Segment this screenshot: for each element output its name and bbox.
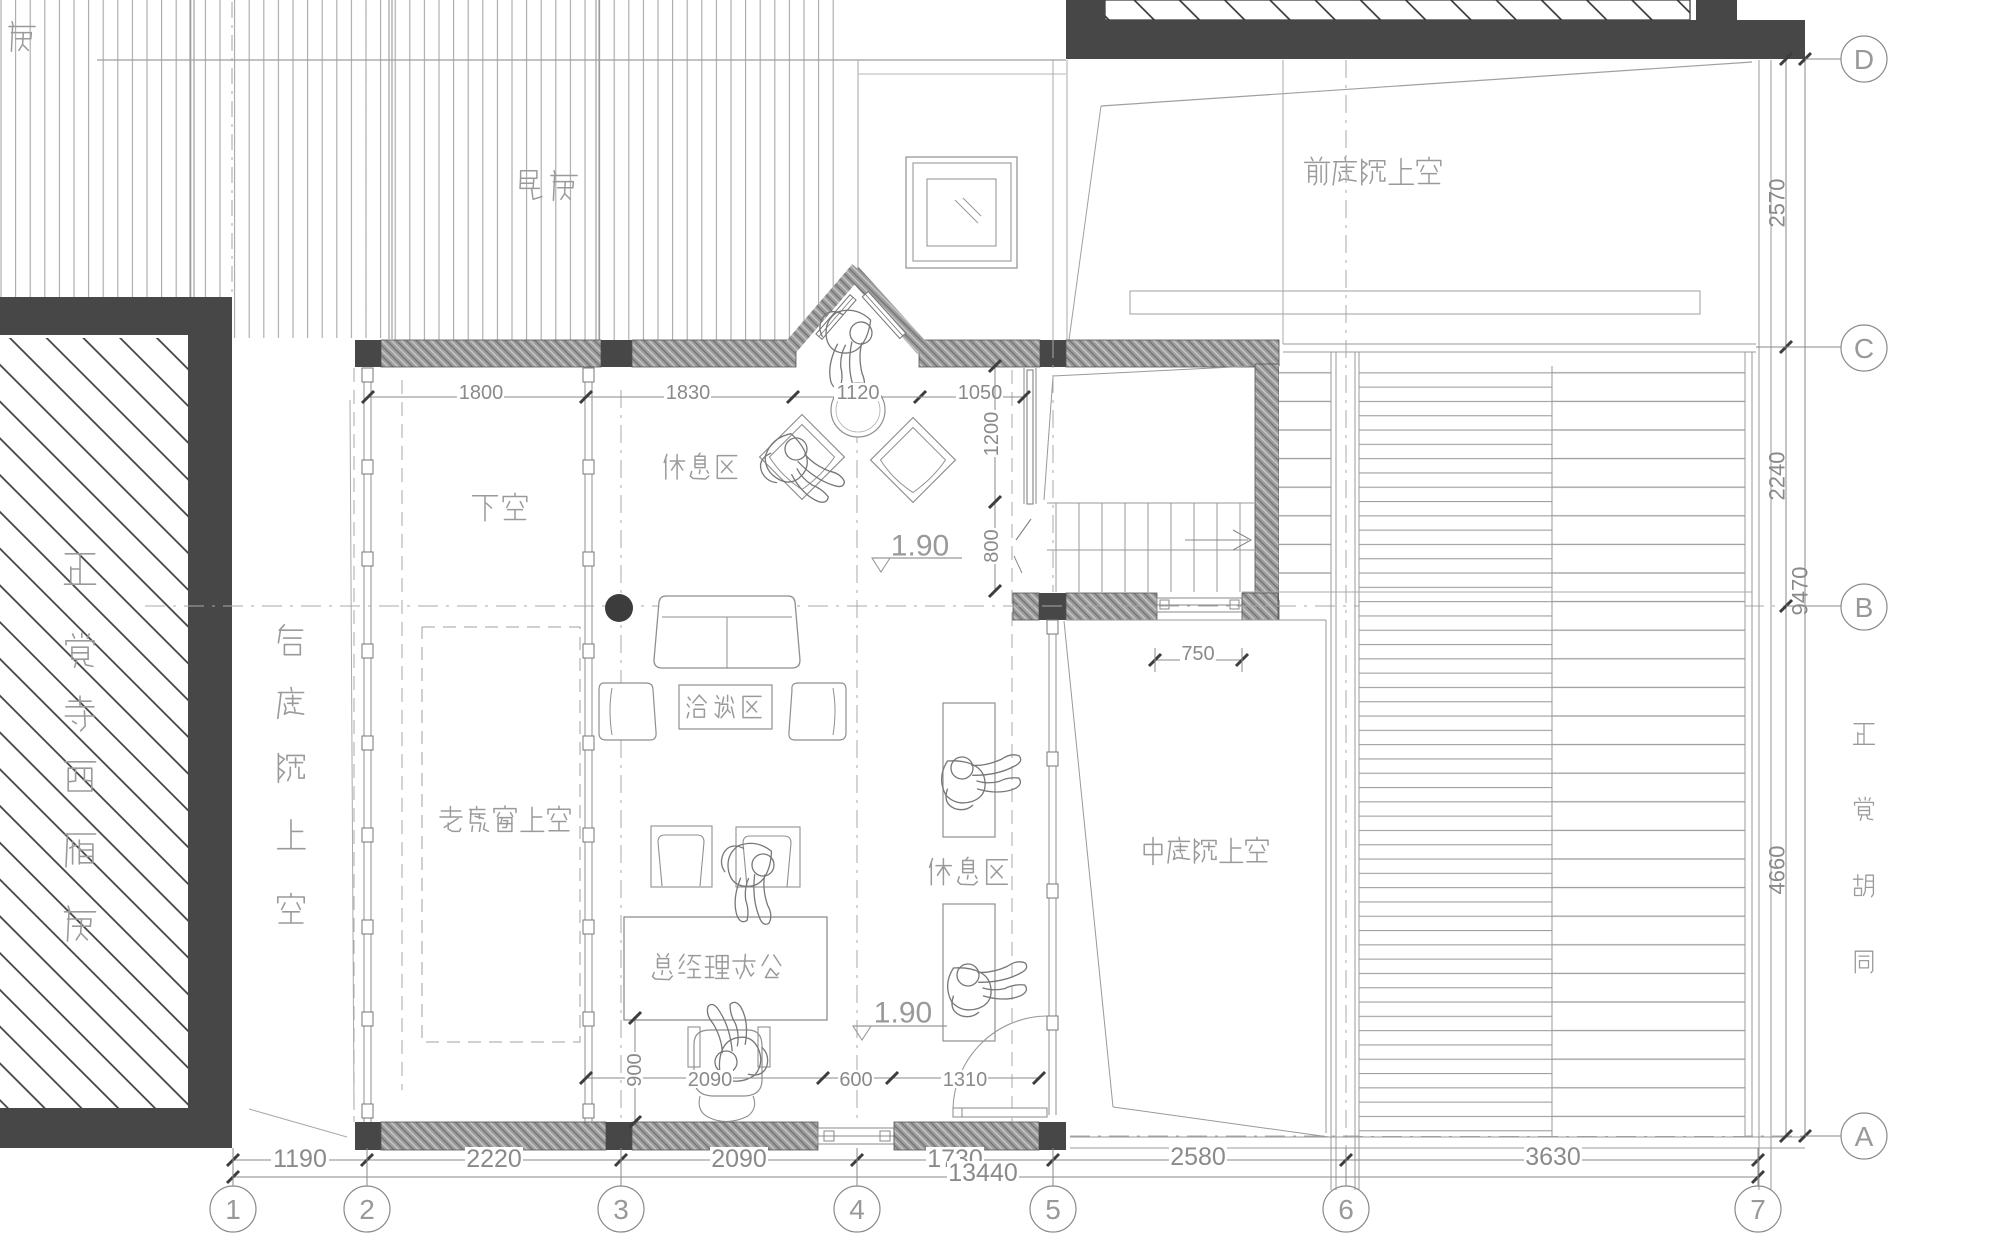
svg-text:7: 7 (1750, 1194, 1766, 1225)
svg-text:A: A (1855, 1121, 1874, 1152)
svg-text:2: 2 (359, 1194, 375, 1225)
svg-text:1: 1 (225, 1194, 241, 1225)
svg-text:1190: 1190 (273, 1145, 327, 1173)
svg-text:5: 5 (1045, 1194, 1061, 1225)
svg-text:900: 900 (624, 1053, 646, 1086)
svg-text:2220: 2220 (466, 1145, 522, 1173)
svg-text:2240: 2240 (1765, 452, 1790, 501)
svg-text:4: 4 (849, 1194, 865, 1225)
svg-text:1800: 1800 (459, 382, 504, 404)
svg-text:2570: 2570 (1765, 179, 1790, 228)
svg-text:6: 6 (1338, 1194, 1354, 1225)
svg-text:750: 750 (1181, 643, 1214, 665)
svg-text:13440: 13440 (948, 1159, 1018, 1187)
svg-text:2090: 2090 (711, 1145, 767, 1173)
svg-text:800: 800 (981, 529, 1003, 562)
svg-text:1830: 1830 (666, 382, 711, 404)
svg-text:2090: 2090 (688, 1069, 733, 1091)
svg-text:1120: 1120 (836, 382, 879, 404)
svg-text:3630: 3630 (1525, 1143, 1581, 1171)
svg-text:1200: 1200 (981, 412, 1003, 457)
svg-text:1.90: 1.90 (874, 997, 932, 1030)
svg-text:C: C (1854, 333, 1874, 364)
svg-text:3: 3 (613, 1194, 629, 1225)
svg-text:4660: 4660 (1765, 846, 1790, 895)
svg-text:1310: 1310 (943, 1069, 988, 1091)
svg-text:D: D (1854, 44, 1874, 75)
svg-text:2580: 2580 (1170, 1143, 1226, 1171)
svg-text:9470: 9470 (1788, 567, 1813, 616)
svg-text:B: B (1855, 592, 1874, 623)
svg-text:600: 600 (839, 1069, 872, 1091)
svg-text:1050: 1050 (958, 382, 1003, 404)
